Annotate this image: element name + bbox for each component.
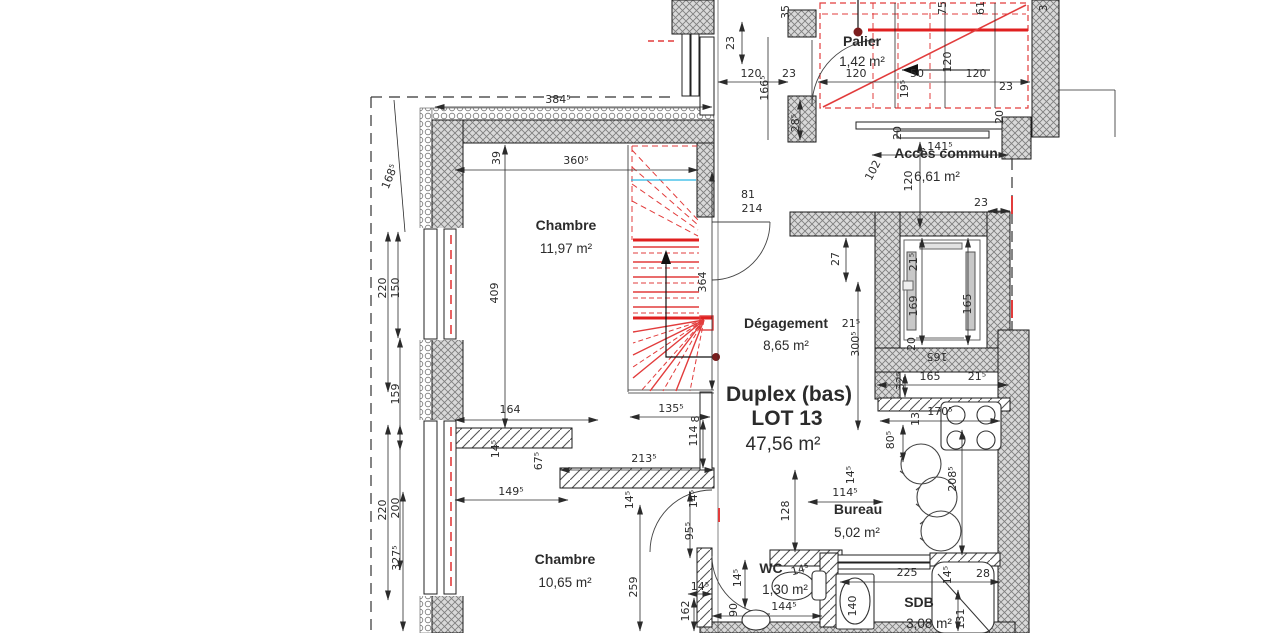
dimension-label: 19⁵ — [898, 80, 911, 98]
room-name: Chambre — [536, 217, 597, 233]
dimension-label: 164 — [500, 403, 521, 416]
dimension-label: 23 — [782, 67, 796, 80]
dimension-label: 14⁵ — [941, 566, 954, 584]
room-area: 1,42 m² — [839, 54, 885, 69]
dimension-label: 67⁵ — [532, 452, 545, 470]
dimension-label: 21⁵ — [842, 317, 860, 330]
dimension-label: 14⁵ — [691, 580, 709, 593]
room-lot-number: LOT 13 — [751, 407, 822, 430]
door-chambre-bas — [650, 490, 712, 552]
room-name: Palier — [843, 33, 882, 49]
dimension-label: 3 — [1037, 5, 1050, 12]
dimension-label: 144⁵ — [771, 600, 796, 613]
room-area: 6,61 m² — [914, 169, 960, 184]
dimension-label: 27 — [829, 252, 842, 266]
dimension-label: 28⁵ — [789, 114, 802, 132]
dimension-label: 21⁵ — [968, 370, 986, 383]
dimension-label: 259 — [627, 577, 640, 598]
dimension-label: 28 — [976, 567, 990, 580]
dimension-label: 50 — [910, 67, 924, 80]
wc-sink — [742, 610, 770, 630]
dimension-label: 14⁵ — [687, 490, 700, 508]
dimension-label: 150 — [389, 278, 402, 299]
room-area: 8,65 m² — [763, 338, 809, 353]
room-name: Duplex (bas) — [726, 383, 852, 406]
dimension-label: 8 — [689, 416, 702, 423]
dimension-label: 61 — [974, 1, 987, 15]
dimension-label: 21⁵ — [907, 253, 920, 271]
dimension-label: 149⁵ — [498, 485, 523, 498]
window-acces-commun — [856, 122, 1002, 138]
floor-plan-page: 384⁵39360⁵364409168⁵22015015922020016413… — [0, 0, 1280, 633]
dimension-label: 20 — [891, 126, 904, 140]
dimension-label: 409 — [488, 283, 501, 304]
dimension-label: 80⁵ — [884, 431, 897, 449]
wall-insulation — [420, 22, 714, 633]
dimension-label: 169 — [907, 296, 920, 317]
dimension-label: 327⁵ — [390, 545, 403, 570]
dimension-label: 165 — [920, 370, 941, 383]
dimension-label: 14⁵ — [731, 569, 744, 587]
dimension-label: 81 — [741, 188, 755, 201]
dimension-label: 20 — [993, 110, 1006, 124]
floor-plan-drawing: 384⁵39360⁵364409168⁵22015015922020016413… — [0, 0, 1280, 633]
dimension-label: 140 — [846, 596, 859, 617]
dimension-label: 120 — [941, 52, 954, 73]
window-top-left-apartment — [682, 34, 699, 96]
dimension-label: 300⁵ — [849, 331, 862, 356]
dimension-label: 90 — [727, 603, 740, 617]
dimension-label: 14⁵ — [844, 466, 857, 484]
room-name: Chambre — [535, 551, 596, 567]
dimension-label: 135⁵ — [658, 402, 683, 415]
dimension-label: 360⁵ — [563, 154, 588, 167]
dimension-label: 14⁵ — [623, 491, 636, 509]
dimension-label: 23 — [974, 196, 988, 209]
dimension-label: 364 — [696, 272, 709, 293]
dimension-label: 165 — [927, 350, 948, 363]
dimension-label: 200 — [389, 498, 402, 519]
dimension-label: 131 — [954, 609, 967, 630]
dimension-label: 114 — [687, 426, 700, 447]
chairs — [900, 444, 961, 551]
dimension-label: 35 — [779, 5, 792, 19]
dimension-label: 95⁵ — [683, 522, 696, 540]
dimension-label: 165 — [961, 294, 974, 315]
dimension-label: 14⁵ — [489, 440, 502, 458]
room-area: 3,08 m² — [906, 616, 952, 631]
stair-upper-flight-dashed — [632, 146, 698, 240]
dimension-label: 159 — [389, 384, 402, 405]
dimension-label: 168⁵ — [379, 162, 401, 190]
door-degagement — [712, 222, 770, 280]
dimension-label: 208⁵ — [946, 466, 959, 491]
room-area: 47,56 m² — [746, 434, 821, 455]
room-area: 1,30 m² — [762, 582, 808, 597]
dimension-label: 32⁵ — [894, 372, 907, 390]
dimension-label: 23 — [999, 80, 1013, 93]
dimension-label: 162 — [679, 601, 692, 622]
dimension-label: 170⁵ — [927, 405, 952, 418]
room-area: 10,65 m² — [538, 575, 592, 590]
stair-winders — [633, 320, 704, 391]
room-name: Accès commun — [894, 145, 997, 161]
room-name: SDB — [904, 594, 934, 610]
dimension-label: 20 — [905, 337, 918, 351]
dimension-label: 75 — [936, 1, 949, 15]
dimension-label: 214 — [742, 202, 763, 215]
dimension-label: 114⁵ — [832, 486, 857, 499]
dimension-label: 220 — [376, 500, 389, 521]
dimension-label: 13 — [909, 412, 922, 426]
dimension-label: 120 — [902, 171, 915, 192]
dimension-label: 384⁵ — [545, 93, 570, 106]
dimension-label: 225 — [897, 566, 918, 579]
dimension-label: 39 — [490, 151, 503, 165]
dimension-label: 128 — [779, 501, 792, 522]
room-area: 5,02 m² — [834, 525, 880, 540]
dimension-label: 120 — [966, 67, 987, 80]
dimension-label: 220 — [376, 278, 389, 299]
room-name: Dégagement — [744, 315, 828, 331]
dimension-label: 102 — [862, 158, 883, 183]
room-name: Bureau — [834, 501, 882, 517]
room-area: 11,97 m² — [540, 241, 593, 256]
room-name: WC — [759, 560, 782, 576]
dimension-label: 23 — [724, 36, 737, 50]
dimension-label: 213⁵ — [631, 452, 656, 465]
dimension-label: 166⁵ — [758, 75, 771, 100]
